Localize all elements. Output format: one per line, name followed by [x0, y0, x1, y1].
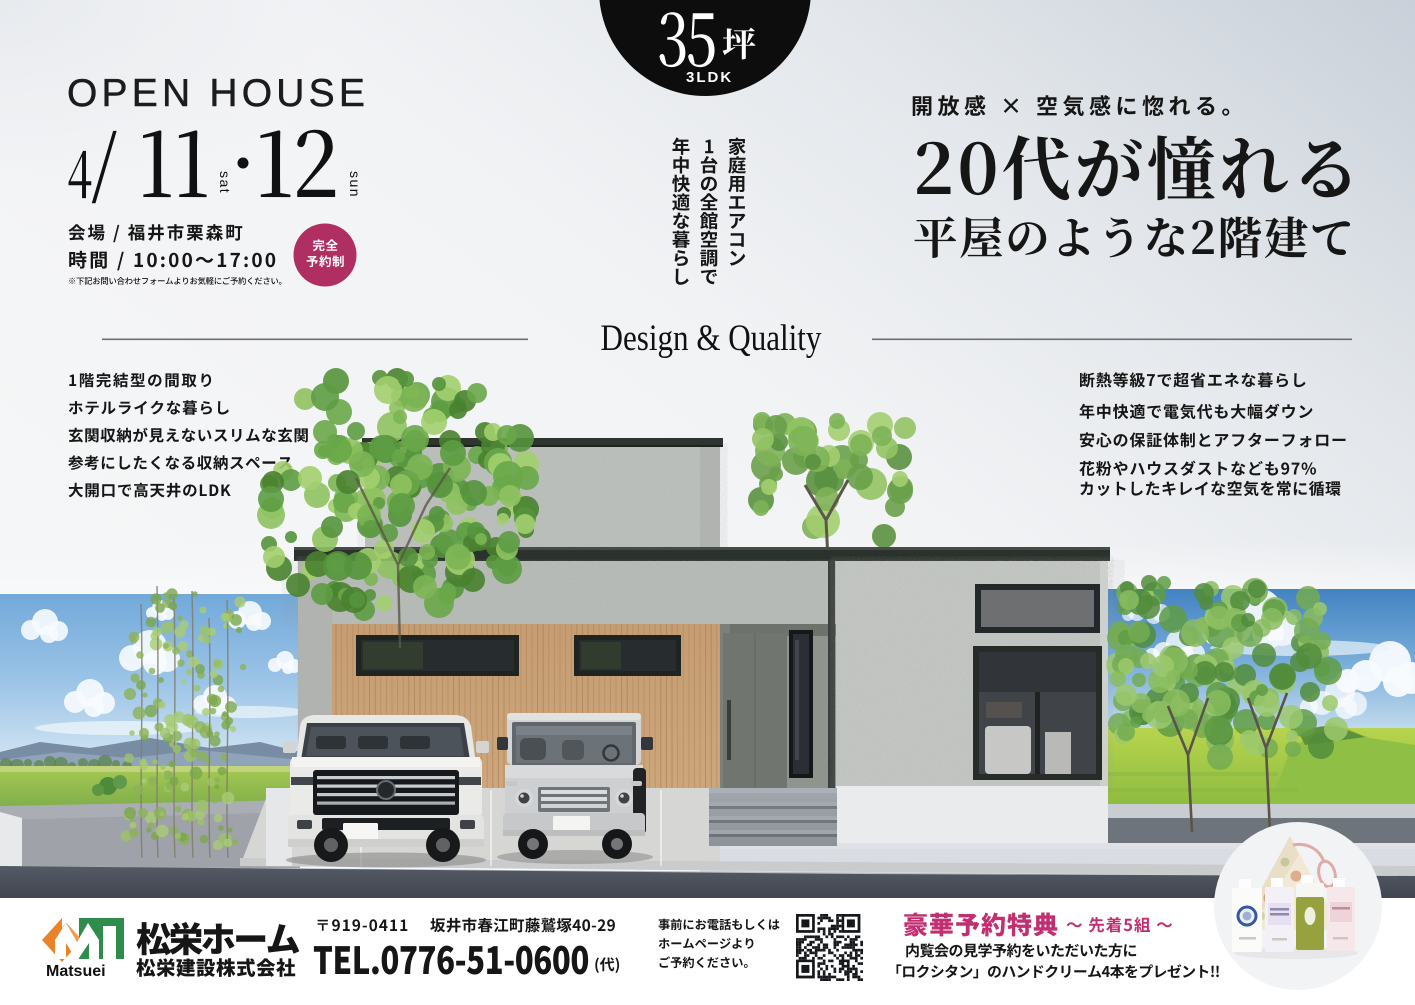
svg-text:OPEN HOUSE: OPEN HOUSE	[67, 72, 369, 115]
svg-text:sat: sat	[217, 171, 233, 194]
svg-text:Design & Quality: Design & Quality	[601, 319, 822, 359]
svg-text:sun: sun	[347, 171, 363, 198]
svg-text:3LDK: 3LDK	[686, 69, 733, 86]
svg-text:Matsuei: Matsuei	[46, 963, 106, 980]
